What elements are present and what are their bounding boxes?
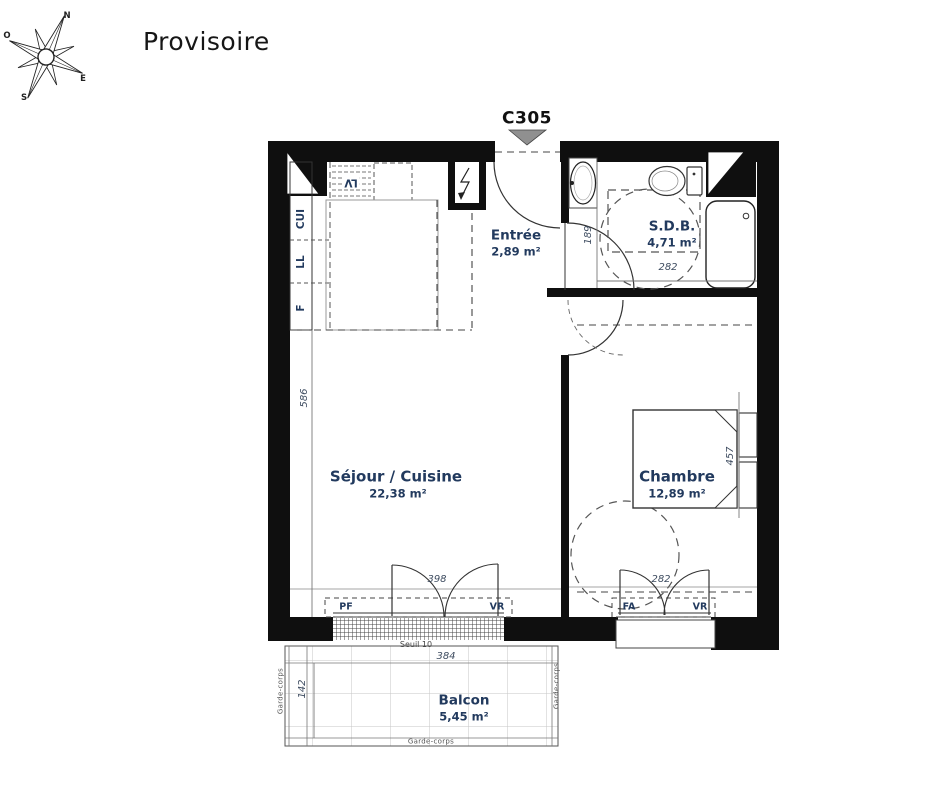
dim-chambre-window: 282	[651, 575, 670, 585]
bathtub-icon	[706, 201, 755, 288]
room-label-balcon: Balcon	[439, 694, 490, 708]
room-area-sejour: 22,38 m²	[369, 488, 426, 500]
compass-north-label: N	[63, 12, 70, 21]
compass-rose-icon	[0, 0, 103, 115]
fixture-label-lv: LV	[342, 177, 359, 188]
threshold-note: Seuil 10	[400, 641, 432, 649]
room-area-entree: 2,89 m²	[491, 246, 540, 258]
dim-sdb-width: 282	[658, 263, 677, 273]
fixture-label-pf: PF	[339, 602, 352, 612]
electrical-panel-icon	[448, 162, 486, 210]
floorplan-graphics	[0, 0, 926, 800]
duct-shaft-topright	[706, 150, 756, 197]
compass-south-label: S	[21, 94, 27, 103]
sdb-door-arc	[565, 223, 634, 290]
turning-circles	[571, 189, 700, 609]
entry-door-arc	[494, 162, 560, 228]
room-label-chambre: Chambre	[639, 470, 715, 485]
sink-icon	[569, 158, 597, 208]
fixture-label-fa: FA	[623, 602, 636, 612]
dim-sejour-height: 586	[300, 388, 310, 407]
railing-label-right: Garde-corps	[554, 663, 561, 709]
room-label-sejour: Séjour / Cuisine	[330, 470, 462, 485]
appliance-dashed-box	[374, 163, 412, 200]
chambre-door-arc	[568, 300, 623, 355]
dim-balcon-width: 384	[436, 652, 455, 662]
window-sill	[616, 620, 715, 648]
room-area-balcon: 5,45 m²	[439, 711, 488, 723]
compass-west-label: O	[3, 32, 10, 41]
fixture-label-ll: LL	[296, 255, 307, 268]
threshold-hatch	[333, 618, 504, 640]
room-label-sdb: S.D.B.	[649, 220, 696, 234]
railing-label-left: Garde-corps	[278, 668, 285, 714]
entrance-marker-triangle	[509, 130, 546, 145]
fixture-label-f: F	[296, 304, 307, 311]
fixture-label-cui: CUI	[296, 209, 307, 229]
dim-entree-height: 189	[584, 225, 594, 244]
sejour-window	[325, 564, 512, 640]
plan-title: Provisoire	[143, 27, 270, 56]
kitchen-block	[326, 200, 438, 330]
compass-east-label: E	[80, 75, 86, 84]
duct-shaft-topleft	[285, 150, 327, 196]
dim-sejour-window: 398	[427, 575, 446, 585]
room-label-entree: Entrée	[491, 229, 541, 243]
ceiling-lines	[290, 587, 757, 589]
railing-label-bottom: Garde-corps	[408, 739, 454, 746]
dim-chambre-height: 457	[726, 446, 736, 465]
dim-balcon-depth: 142	[298, 679, 308, 698]
floorplan-page: Provisoire C305 N O E S Entrée 2,89 m² S…	[0, 0, 926, 800]
room-area-sdb: 4,71 m²	[647, 237, 696, 249]
fixture-label-vr-sejour: VR	[490, 602, 505, 612]
unit-label: C305	[502, 111, 552, 128]
balcony-tiles	[285, 646, 558, 746]
fixture-label-vr-chambre: VR	[693, 602, 708, 612]
room-area-chambre: 12,89 m²	[648, 488, 705, 500]
toilet-icon	[649, 167, 702, 196]
